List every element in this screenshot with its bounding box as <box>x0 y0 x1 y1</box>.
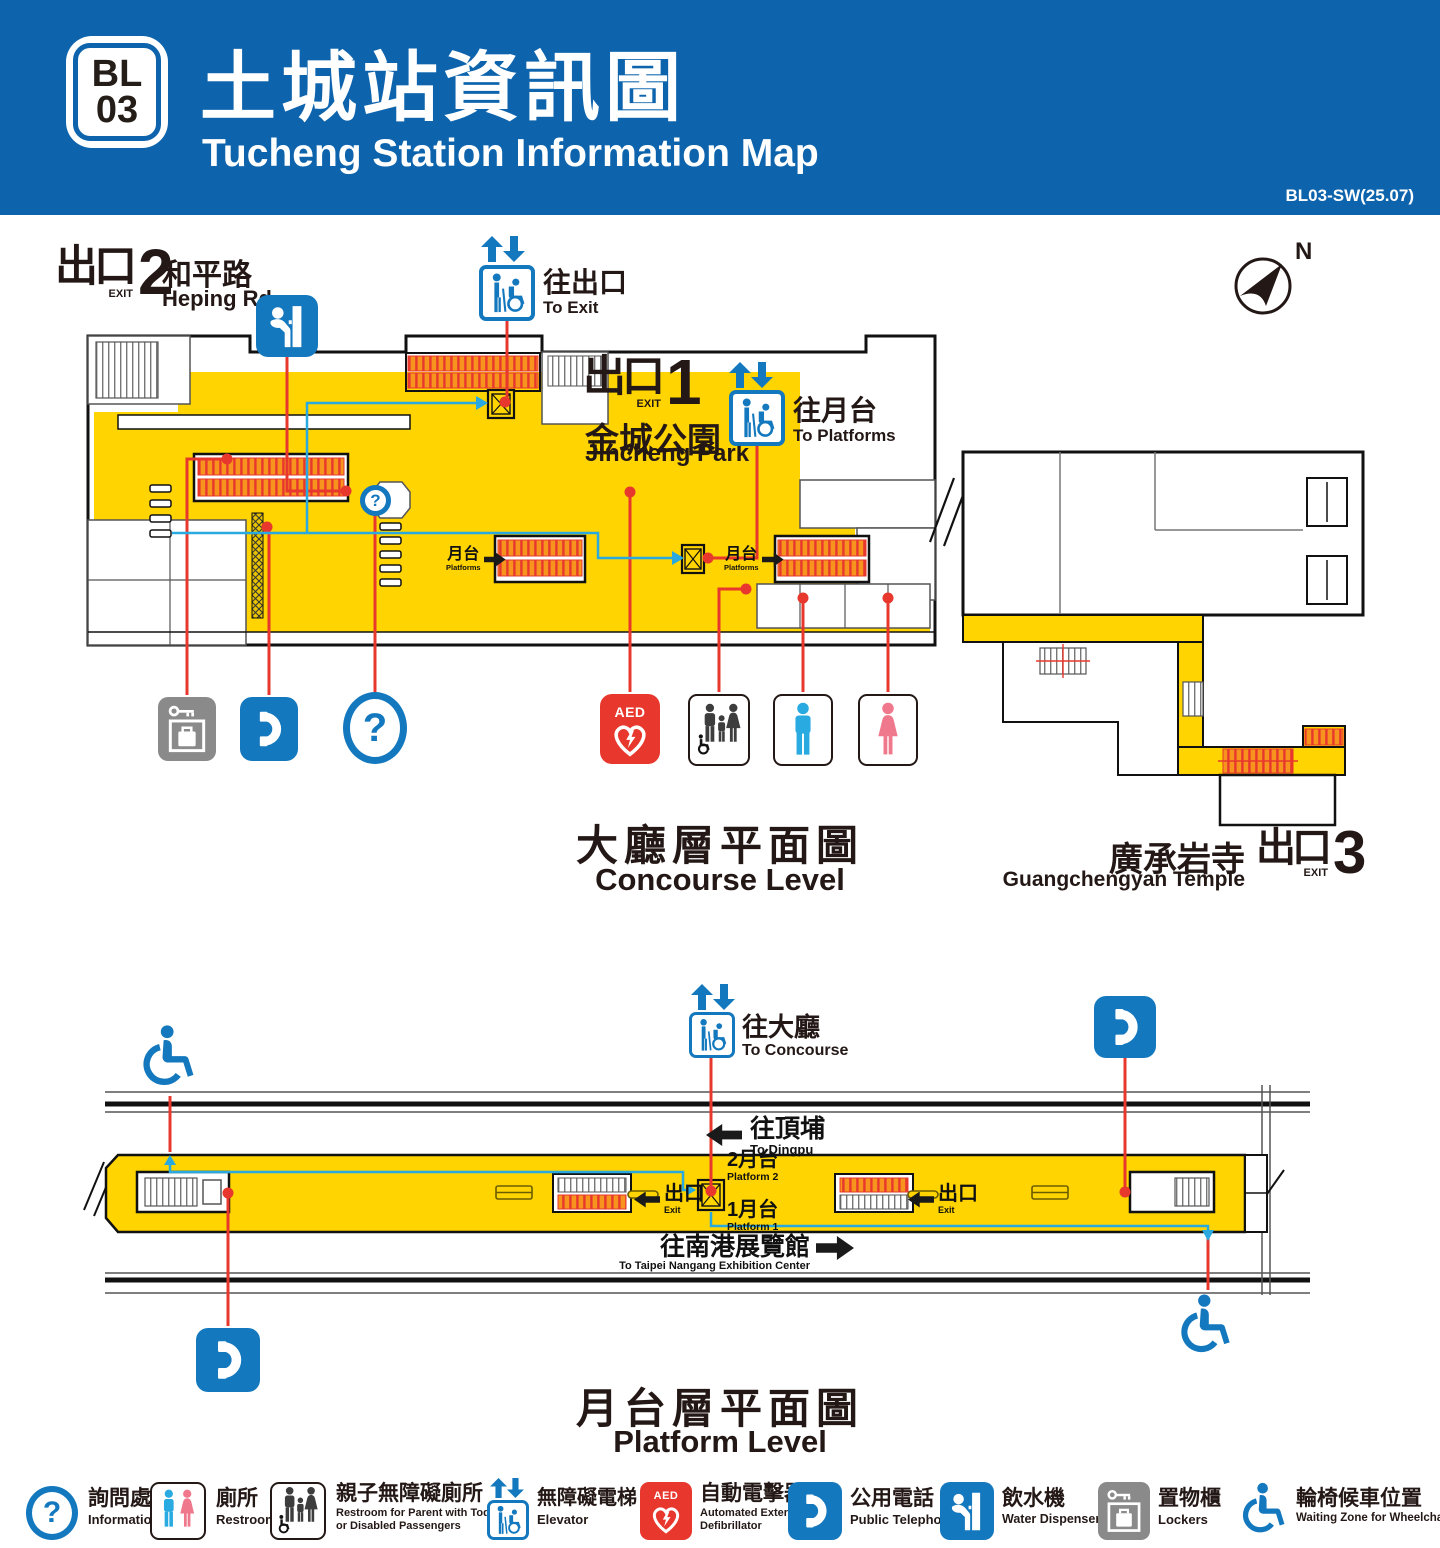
station-code-line: BL <box>92 56 143 92</box>
arrow-right-icon <box>484 553 506 567</box>
arrow-left-icon <box>634 1192 660 1208</box>
exit-2-en: EXIT <box>109 289 133 300</box>
legend-label-en: Information <box>88 1512 160 1527</box>
restroom-icon <box>150 1482 206 1540</box>
arrow-left-icon <box>908 1192 934 1208</box>
exit-1-mark: 出口 EXIT 1 <box>583 356 702 408</box>
legend-label-zh: 飲水機 <box>1002 1487 1065 1510</box>
information-icon: ? <box>26 1486 78 1540</box>
direction-nangang: 往南港展覽館 To Taipei Nangang Exhibition Cent… <box>598 1234 810 1272</box>
legend-label-zh: 廁所 <box>216 1487 258 1510</box>
platforms-marker-left: 月台 Platforms <box>446 547 506 572</box>
exit-3-place-en: Guangchengyan Temple <box>1000 868 1245 892</box>
legend-label-en: Waiting Zone for Wheelchair <box>1296 1512 1440 1524</box>
exit-marker-right: 出口 Exit <box>908 1184 978 1215</box>
platforms-marker-zh: 月台 <box>724 547 759 563</box>
elevator-to-platforms-icon <box>729 390 785 446</box>
to-nangang-zh: 往南港展覽館 <box>598 1234 810 1260</box>
lockers-icon <box>1098 1482 1150 1540</box>
legend-label-en: Lockers <box>1158 1512 1208 1527</box>
exit-marker-left: 出口 Exit <box>634 1184 704 1215</box>
exit-1-en: EXIT <box>637 399 661 410</box>
lockers-map-icon <box>158 697 216 761</box>
platforms-marker-en: Platforms <box>724 563 759 572</box>
exit-3-number: 3 <box>1333 828 1366 877</box>
family-restroom-map-icon <box>688 694 750 766</box>
map-version: BL03-SW(25.07) <box>1286 186 1414 206</box>
public-telephone-map-icon <box>240 697 298 761</box>
legend-label-en: Water Dispenser <box>1002 1512 1100 1526</box>
platform-2-label: 2月台 Platform 2 <box>727 1150 778 1183</box>
exit-1-place-en: Jincheng Park <box>585 440 749 468</box>
to-nangang-en: To Taipei Nangang Exhibition Center <box>598 1260 810 1272</box>
public-telephone-icon <box>788 1482 842 1540</box>
exit-1-zh: 出口 <box>583 353 661 401</box>
public-telephone-map-icon <box>1094 996 1156 1058</box>
legend-label-zh: 輪椅候車位置 <box>1296 1487 1422 1510</box>
map-elevator-2 <box>682 545 704 573</box>
wheelchair-waiting-zone-icon <box>1178 1292 1236 1365</box>
to-dingpu-zh: 往頂埔 <box>750 1116 825 1142</box>
elevator-to-concourse-icon <box>689 1012 735 1058</box>
legend-label-zh: 詢問處 <box>88 1487 151 1510</box>
legend-label-zh: 置物櫃 <box>1158 1487 1221 1510</box>
elevator-updown-arrows-icon <box>691 984 735 1010</box>
elevator-updown-arrows-icon <box>481 236 525 262</box>
exit-2-mark: 出口 EXIT 2 <box>55 246 174 298</box>
exit-3-en: EXIT <box>1304 868 1328 879</box>
water-dispenser-icon <box>940 1482 994 1540</box>
concourse-caption-en: Concourse Level <box>560 862 880 898</box>
to-exit-label-zh: 往出口 <box>543 268 627 297</box>
exit-1-number: 1 <box>666 356 702 408</box>
family-restroom-icon <box>270 1482 326 1540</box>
to-concourse-label-zh: 往大廳 <box>742 1014 820 1041</box>
public-telephone-map-icon <box>196 1328 260 1392</box>
page-title-zh: 土城站資訊圖 <box>200 26 686 136</box>
legend-label-en: Restroom <box>216 1512 277 1527</box>
wheelchair-waiting-zone-icon <box>140 1022 200 1099</box>
station-code-badge: BL 03 <box>66 36 168 148</box>
to-concourse-label-en: To Concourse <box>742 1042 848 1060</box>
station-information-map: BL 03 土城站資訊圖 Tucheng Station Information… <box>0 0 1440 1548</box>
elevator-updown-arrows-icon <box>489 1478 525 1498</box>
to-exit-label-en: To Exit <box>543 298 598 318</box>
ticket-machines <box>252 513 263 618</box>
elevator-icon <box>487 1500 529 1540</box>
compass-north-label: N <box>1295 238 1312 266</box>
platforms-marker-zh: 月台 <box>446 547 481 563</box>
aed-map-icon: AED <box>600 694 660 764</box>
platform-caption-en: Platform Level <box>560 1424 880 1460</box>
platform-1-label: 1月台 Platform 1 <box>727 1200 778 1233</box>
to-platforms-label-en: To Platforms <box>793 426 896 446</box>
exit-3-mark: 出口 EXIT 3 <box>1256 828 1366 877</box>
water-dispenser-map-icon <box>256 295 318 357</box>
information-row-icon: ? <box>343 692 407 764</box>
mens-restroom-map-icon <box>773 694 833 766</box>
legend-label-zh: 公用電話 <box>850 1487 934 1510</box>
womens-restroom-map-icon <box>858 694 918 766</box>
exit-3-zh: 出口 <box>1256 826 1328 870</box>
elevator-updown-arrows-icon <box>729 362 773 388</box>
legend-label-zh: 無障礙電梯 <box>537 1487 637 1509</box>
arrow-right-icon <box>762 553 784 567</box>
station-code-number: 03 <box>96 92 138 128</box>
legend-label-zh: 親子無障礙廁所 <box>336 1482 483 1505</box>
platforms-marker-right: 月台 Platforms <box>724 547 784 572</box>
compass-icon <box>1230 248 1300 318</box>
information-map-icon: ? <box>360 485 391 516</box>
to-platforms-label-zh: 往月台 <box>793 396 877 425</box>
header: BL 03 土城站資訊圖 Tucheng Station Information… <box>0 0 1440 215</box>
legend-label-en: Elevator <box>537 1512 588 1527</box>
aed-icon: AED <box>640 1482 692 1540</box>
wheelchair-icon <box>1240 1482 1290 1543</box>
page-title-en: Tucheng Station Information Map <box>202 132 819 176</box>
elevator-to-exit-icon <box>479 265 535 321</box>
exit-2-zh: 出口 <box>55 243 133 291</box>
platforms-marker-en: Platforms <box>446 563 481 572</box>
